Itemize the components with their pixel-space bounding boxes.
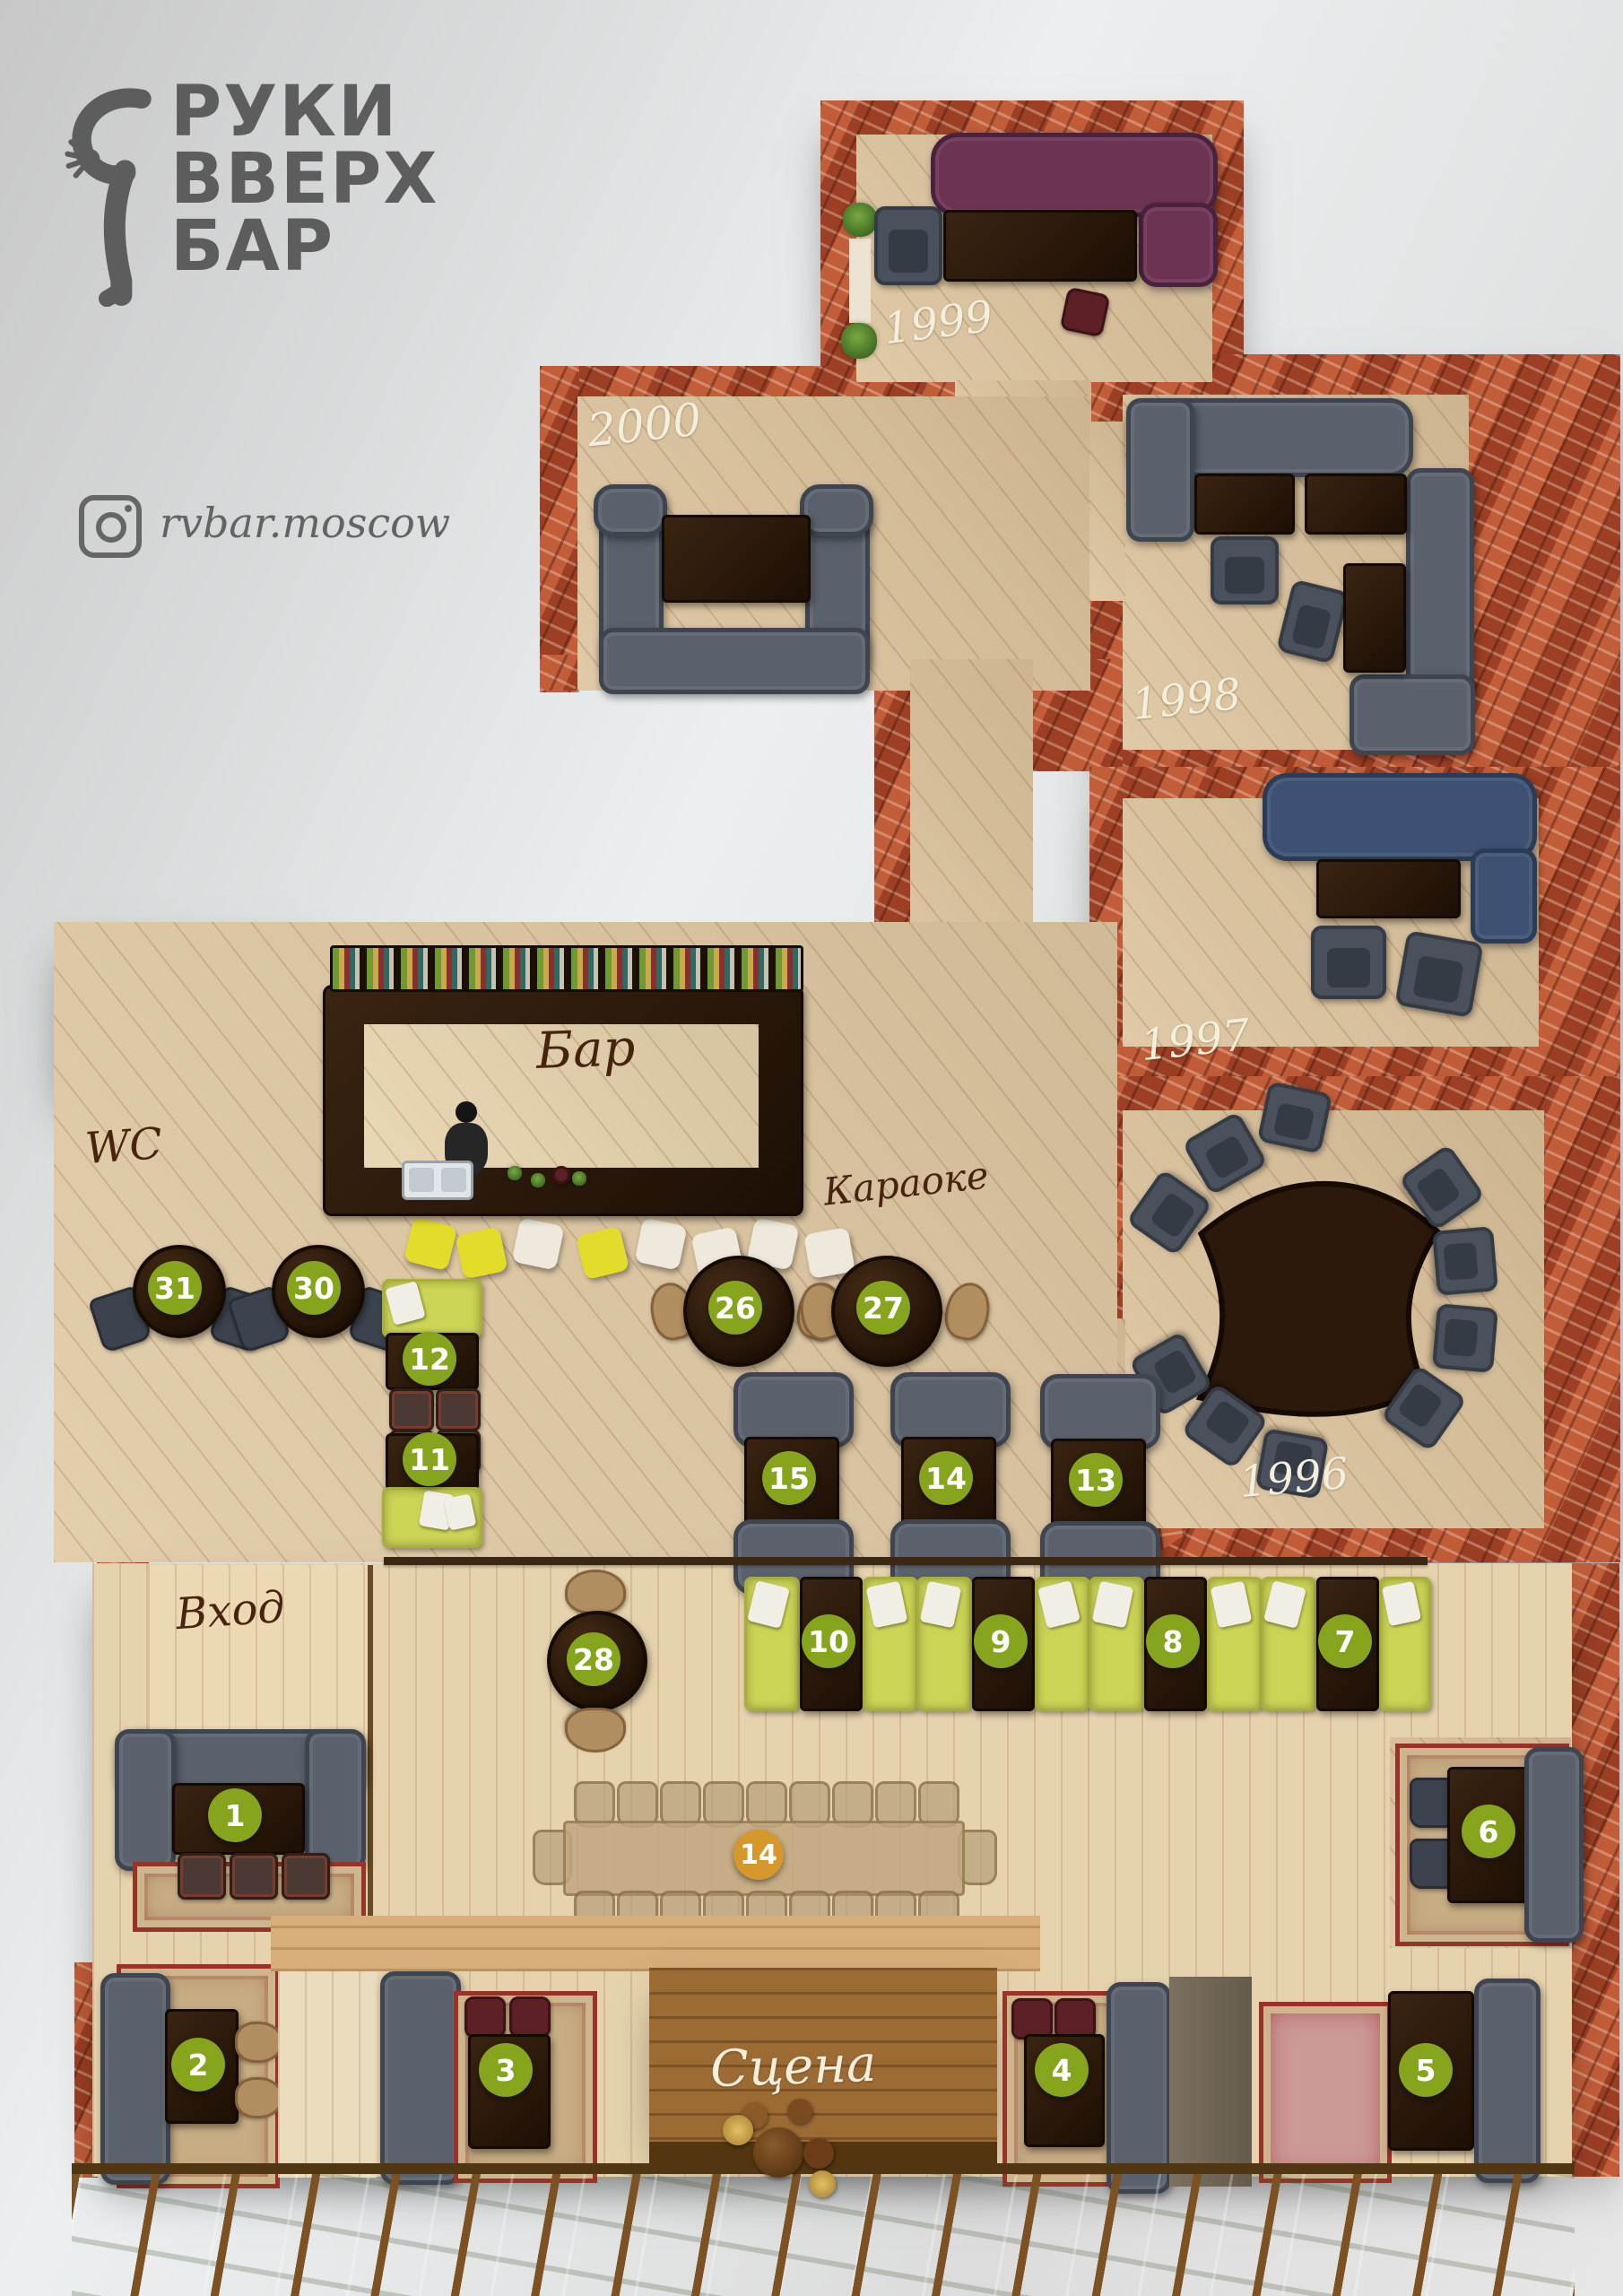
- pillar-1999: [849, 239, 871, 323]
- chair-1996-8: [1432, 1226, 1498, 1296]
- pouf-3-b: [509, 1996, 551, 2038]
- area-label-stage: Сцена: [709, 2035, 877, 2099]
- table-1998-c: [1343, 563, 1406, 673]
- divider-4-5: [1169, 1977, 1252, 2187]
- plant-1999-a: [843, 203, 877, 237]
- bartender-head: [456, 1101, 477, 1123]
- table-badge-5[interactable]: 5: [1399, 2043, 1453, 2097]
- area-label-bar: Бар: [535, 1019, 637, 1081]
- logo-line-2: ВВЕРХ: [170, 146, 439, 213]
- sofa-2: [100, 1973, 170, 2185]
- chair-12-b: [436, 1388, 481, 1431]
- plant-1999-b: [841, 323, 877, 359]
- sofa-1999-right: [1139, 203, 1218, 287]
- pouf-3-a: [464, 1996, 506, 2038]
- table-badge-4[interactable]: 4: [1035, 2043, 1089, 2097]
- area-label-wc: WC: [83, 1118, 164, 1174]
- bar-sink: [402, 1161, 473, 1200]
- sofa-4: [1107, 1982, 1171, 2194]
- sofa-3: [380, 1971, 461, 2185]
- chair-2-b: [235, 2077, 283, 2118]
- logo-line-1: РУКИ: [170, 79, 439, 146]
- bar-garnish-4: [572, 1171, 586, 1186]
- floor-seam: [368, 1565, 373, 1924]
- sofa-2000-bottom: [599, 628, 870, 694]
- bar-bottle-shelf: [330, 945, 803, 992]
- table-badge-8[interactable]: 8: [1146, 1614, 1200, 1668]
- table-badge-2[interactable]: 2: [171, 2038, 225, 2092]
- sofa-1998-bottom: [1350, 674, 1475, 755]
- table-2000: [662, 515, 811, 603]
- table-badge-28[interactable]: 28: [567, 1632, 621, 1686]
- floor-plan-poster: РУКИ ВВЕРХ БАР rvbar.moscow 1: [0, 0, 1623, 2296]
- sofa-1-right: [305, 1729, 366, 1871]
- table-badge-31[interactable]: 31: [148, 1261, 202, 1315]
- armchair-1997-a: [1311, 926, 1386, 999]
- armchair-1998-a: [1211, 536, 1279, 604]
- sofa-1998-right: [1406, 468, 1474, 700]
- table-badge-14-banquet[interactable]: 14: [733, 1830, 784, 1880]
- drum-kick: [753, 2127, 803, 2178]
- sofa-1997-right: [1471, 848, 1537, 944]
- logo-line-3: БАР: [170, 213, 439, 281]
- table-1998-a: [1194, 474, 1295, 535]
- table-badge-6[interactable]: 6: [1462, 1805, 1515, 1858]
- armchair-1997-b: [1394, 930, 1483, 1018]
- sofa-5: [1474, 1979, 1541, 2183]
- rug-5: [1259, 2002, 1392, 2183]
- sofa-1-left: [115, 1729, 176, 1871]
- area-label-entrance: Вход: [174, 1582, 286, 1639]
- chair-2-a: [235, 2022, 283, 2063]
- chair-1-a: [178, 1853, 226, 1900]
- table-badge-30[interactable]: 30: [287, 1261, 341, 1315]
- table-badge-12[interactable]: 12: [403, 1332, 456, 1386]
- table-1997: [1316, 859, 1461, 918]
- chair-28-top: [565, 1570, 626, 1614]
- floor-1998-door: [1089, 422, 1125, 601]
- drum-floor-tom: [803, 2138, 834, 2169]
- wall-2000-left: [540, 366, 579, 692]
- bar-stool-3: [511, 1217, 564, 1270]
- table-badge-3[interactable]: 3: [479, 2043, 533, 2097]
- table-badge-1[interactable]: 1: [208, 1788, 262, 1842]
- sofa-2000-armcap-right: [800, 484, 873, 536]
- table-badge-9[interactable]: 9: [974, 1614, 1028, 1668]
- instagram-icon: [79, 495, 142, 558]
- stage-back-band: [271, 1916, 1040, 1971]
- drum-cymbal-left: [723, 2115, 753, 2145]
- instagram-handle[interactable]: rvbar.moscow: [160, 499, 450, 547]
- chair-28-bottom: [565, 1708, 626, 1752]
- armchair-1999: [874, 206, 942, 285]
- table-1999: [943, 210, 1137, 282]
- sofa-1998-topleft: [1126, 398, 1194, 542]
- table-badge-14[interactable]: 14: [919, 1451, 973, 1505]
- room-label-1996: 1996: [1237, 1448, 1351, 1508]
- chair-1-c: [282, 1853, 330, 1900]
- chair-1996-9: [1432, 1303, 1498, 1373]
- bar-garnish-2: [531, 1173, 545, 1187]
- table-badge-11[interactable]: 11: [403, 1432, 456, 1486]
- drum-tom: [787, 2099, 812, 2124]
- table-badge-26[interactable]: 26: [708, 1281, 762, 1335]
- divider-2-3: [278, 1968, 377, 2178]
- bar-stool-5: [634, 1217, 687, 1270]
- pouf-1999: [1060, 287, 1111, 338]
- drum-cymbal-right: [809, 2170, 836, 2197]
- bar-garnish-1: [508, 1166, 522, 1180]
- bar-stool-2: [455, 1226, 508, 1279]
- table-badge-15[interactable]: 15: [762, 1451, 816, 1505]
- table-badge-10[interactable]: 10: [802, 1614, 855, 1668]
- logo-title: РУКИ ВВЕРХ БАР: [170, 79, 439, 281]
- logo-figure-icon: [63, 83, 170, 307]
- table-badge-27[interactable]: 27: [856, 1281, 910, 1335]
- sofa-6: [1524, 1747, 1584, 1943]
- chair-1996-1: [1257, 1081, 1333, 1153]
- table-badge-7[interactable]: 7: [1318, 1614, 1372, 1668]
- chair-12-a: [389, 1388, 434, 1431]
- table-badge-13[interactable]: 13: [1069, 1453, 1123, 1507]
- table-1998-b: [1305, 474, 1407, 535]
- partition-line: [384, 1557, 1428, 1565]
- chair-1-b: [230, 1853, 278, 1900]
- sofa-2000-armcap-left: [594, 484, 667, 536]
- bar-garnish-3: [552, 1166, 570, 1184]
